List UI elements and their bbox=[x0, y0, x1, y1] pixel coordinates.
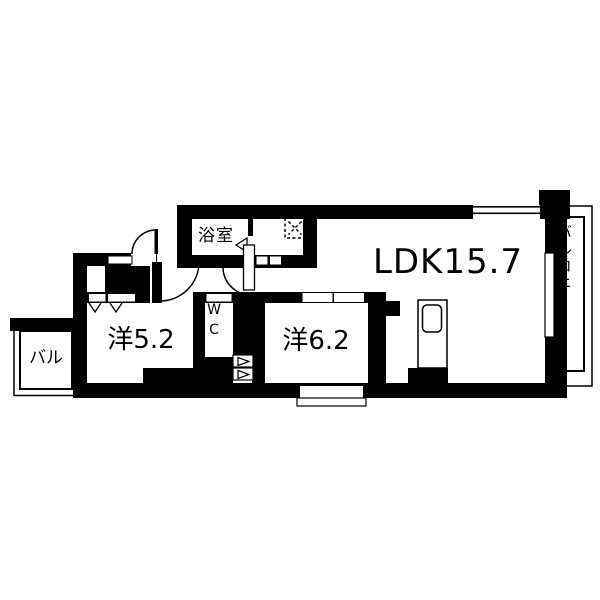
window-top bbox=[473, 205, 540, 219]
wall-room-b-left bbox=[252, 292, 265, 383]
window-top-line1 bbox=[473, 206, 540, 208]
floor-plan-drawing bbox=[0, 0, 600, 600]
room-b-slide-panel-1 bbox=[302, 293, 333, 303]
window-bottom-sill bbox=[297, 398, 366, 406]
window-balcony bbox=[545, 253, 554, 337]
wall-wc-right bbox=[233, 303, 252, 355]
window-bottom bbox=[297, 386, 366, 406]
room-b-slide-panel-2 bbox=[334, 293, 365, 303]
genkan-block bbox=[105, 266, 150, 292]
wall-room-b-top-west bbox=[265, 292, 302, 303]
floor-plan: LDK15.7 浴室 洋5.2 洋6.2 WC バルコニー バル bbox=[0, 0, 600, 600]
closet-room-b bbox=[233, 355, 253, 380]
washroom-slide-door-2 bbox=[270, 256, 282, 265]
room-label-balcony-small: バル bbox=[21, 350, 71, 367]
wc-door-gap bbox=[206, 294, 232, 303]
entrance-storage-slot bbox=[108, 256, 132, 264]
room-label-bath: 浴室 bbox=[188, 228, 244, 245]
washroom-slide-door-1 bbox=[256, 256, 268, 265]
room-label-room-a: 洋5.2 bbox=[94, 327, 188, 353]
kitchen-base bbox=[408, 368, 448, 384]
closet-a-slot-1 bbox=[89, 294, 107, 303]
room-label-room-b: 洋6.2 bbox=[269, 328, 363, 354]
kitchen-sink-icon bbox=[423, 305, 442, 332]
window-bottom-gap bbox=[300, 386, 363, 398]
closet-a-slot-2 bbox=[108, 294, 136, 303]
block-bottom-left bbox=[143, 368, 233, 383]
room-a-door-panel bbox=[152, 262, 162, 303]
washroom-door-panel bbox=[244, 245, 255, 290]
room-label-wc: WC bbox=[207, 302, 221, 356]
room-label-ldk: LDK15.7 bbox=[368, 245, 528, 279]
wall-stub-ldk bbox=[386, 301, 400, 316]
room-label-balcony: バルコニー bbox=[556, 224, 571, 372]
wall-room-b-east bbox=[368, 292, 386, 398]
front-door-panel bbox=[155, 229, 159, 254]
window-top-line2 bbox=[473, 213, 540, 215]
